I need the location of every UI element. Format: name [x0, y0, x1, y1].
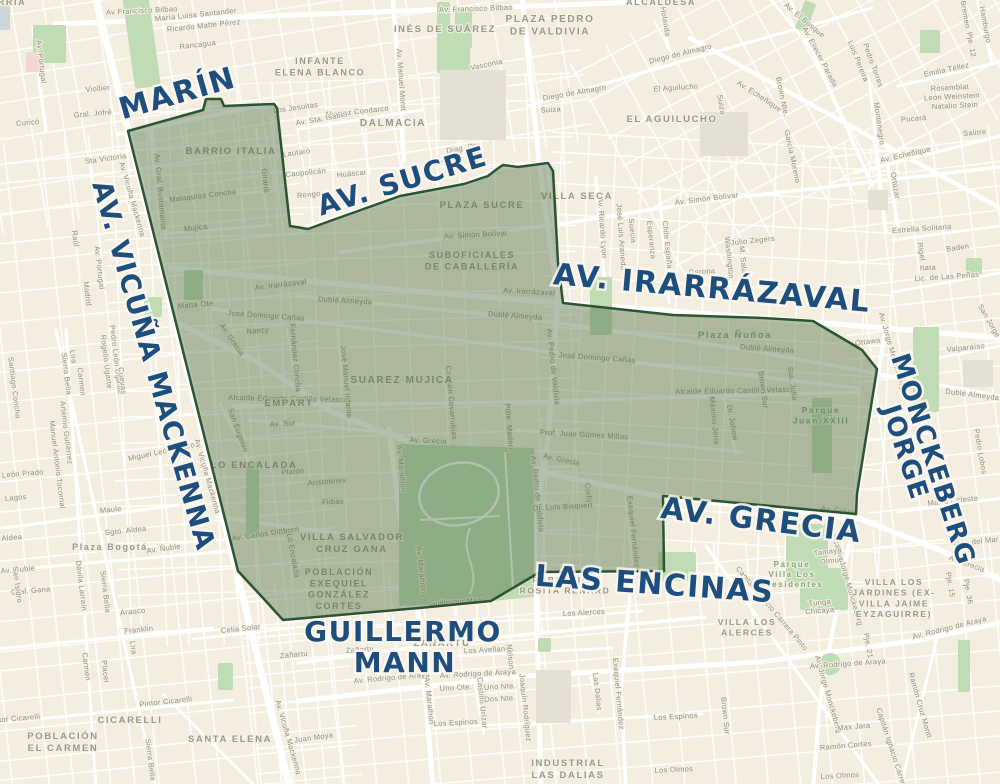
- street-label: Lagos: [4, 492, 27, 503]
- district-label: Plaza Bogotá: [72, 542, 148, 552]
- district-label: ALCALDESA: [626, 0, 696, 7]
- district-label: EL AGUILUCHO: [627, 114, 718, 125]
- street-label: Uno Nte.: [484, 681, 516, 692]
- district-label: RRIA: [0, 0, 26, 7]
- street-label: Suiza: [540, 104, 561, 114]
- street-label: Dos Nte.: [484, 693, 516, 704]
- park: [958, 640, 970, 692]
- street-label: Aldea: [1, 532, 23, 543]
- district-label: SANTA ELENA: [188, 734, 272, 745]
- park: [218, 663, 233, 690]
- district-label: INDUSTRIALLAS DALIAS: [531, 758, 605, 781]
- district-label: PLAZA PEDRODE VALDIVIA: [506, 14, 595, 38]
- map-canvas: María Luisa SantanderRicardo Matte Pérez…: [0, 0, 1000, 784]
- district-label: INÉS DE SUÁREZ: [394, 24, 496, 35]
- district-label: VILLA LOSALERCES: [718, 617, 776, 638]
- district-label: DALMACIA: [360, 118, 426, 129]
- street-label: Lira: [128, 640, 139, 655]
- park: [137, 58, 151, 74]
- district-label: VILLA LOSJARDINES (EX-VILLA JAIMEEYZAGUI…: [852, 577, 935, 619]
- building-block: [536, 670, 571, 723]
- building-block: [963, 360, 993, 387]
- building-block: [868, 190, 888, 210]
- park: [538, 638, 551, 652]
- major-street-label: MANN: [354, 646, 456, 679]
- park: [920, 30, 940, 53]
- district-label: POBLACIÓNEL CARMEN: [27, 730, 98, 754]
- street-label: Uno Ote.: [439, 682, 472, 693]
- major-street-label: GUILLERMO: [304, 615, 502, 648]
- map: María Luisa SantanderRicardo Matte Pérez…: [0, 0, 1000, 784]
- street-label: Itata: [920, 263, 937, 273]
- building-block: [440, 70, 506, 140]
- building-block: [0, 5, 10, 30]
- district-label: CICARELLI: [97, 715, 162, 726]
